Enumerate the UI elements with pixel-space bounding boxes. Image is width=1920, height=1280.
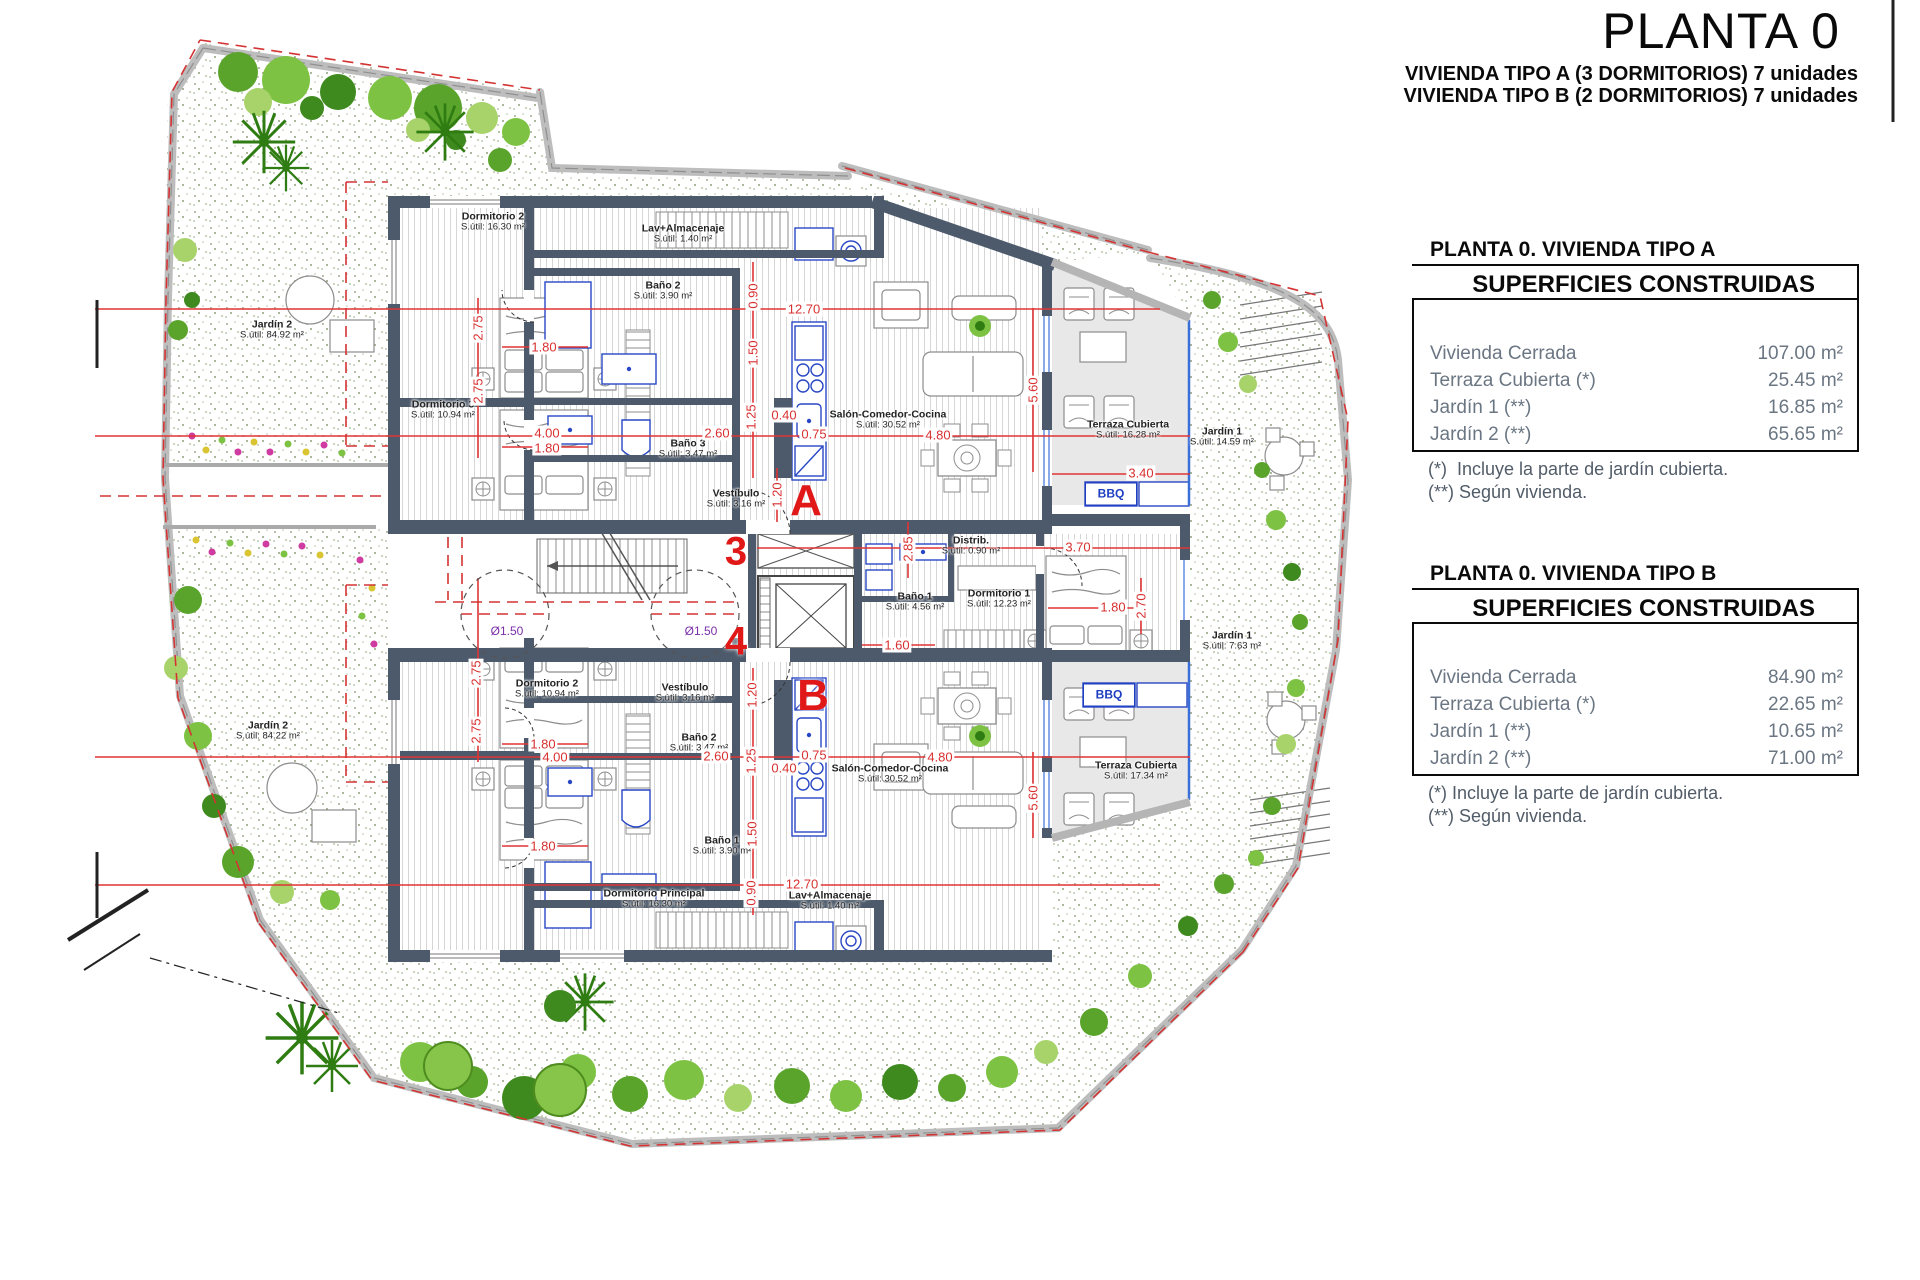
- room-label-vestibulo-a: VestíbuloS.útil: 3.16 m²: [707, 488, 766, 511]
- garden-label-jardin2-top: Jardín 2S.útil: 84.92 m²: [240, 319, 304, 342]
- row-label: Terraza Cubierta (*): [1430, 370, 1596, 394]
- room-label-dormitorio2-b: Dormitorio 2S.útil: 10.94 m²: [515, 678, 579, 701]
- note-line: (*) Incluye la parte de jardín cubierta.: [1428, 458, 1728, 481]
- floor-plan-sheet: { "title_block": { "title": "PLANTA 0", …: [0, 0, 1920, 1280]
- dimension-label: 2.75: [471, 313, 486, 342]
- dimension-label: 2.75: [469, 658, 484, 687]
- room-label-terraza-b: Terraza CubiertaS.útil: 17.34 m²: [1095, 760, 1177, 783]
- row-value: 10.65 m²: [1768, 721, 1843, 745]
- room-label-lav-a: Lav+AlmacenajeS.útil: 1.40 m²: [642, 223, 725, 246]
- surface-row: Jardín 2 (**)65.65 m²: [1430, 424, 1843, 448]
- dimension-label: 0.75: [799, 427, 828, 442]
- dimension-label: 1.25: [744, 402, 759, 431]
- row-label: Terraza Cubierta (*): [1430, 694, 1596, 718]
- subtitle-line-a: VIVIENDA TIPO A (3 DORMITORIOS) 7 unidad…: [1380, 63, 1858, 85]
- room-label-distrib: Distrib.S.útil: 0.90 m²: [942, 535, 1001, 558]
- page-title: PLANTA 0: [1400, 2, 1840, 60]
- room-label-bano1-b: Baño 1S.útil: 3.90 m²: [693, 835, 752, 858]
- dimension-label: 12.70: [786, 302, 823, 317]
- dimension-label: 1.50: [746, 338, 761, 367]
- garden-label-jardin2-bottom: Jardín 2S.útil: 84.22 m²: [236, 720, 300, 743]
- dimension-label: 2.70: [1134, 591, 1149, 620]
- dimension-label: 4.80: [923, 428, 952, 443]
- dimension-label: 1.80: [532, 441, 561, 456]
- portal-3-marker: 3: [725, 530, 747, 575]
- row-label: Jardín 2 (**): [1430, 748, 1531, 772]
- dimension-label: 1.80: [529, 340, 558, 355]
- table-notes: (*) Incluye la parte de jardín cubierta.…: [1428, 782, 1723, 828]
- surfaces-box: Vivienda Cerrada84.90 m² Terraza Cubiert…: [1412, 622, 1859, 776]
- room-label-vestibulo-b: VestíbuloS.útil: 3.16 m²: [656, 682, 715, 705]
- dimension-label: 0.75: [799, 748, 828, 763]
- room-label-terraza-a: Terraza CubiertaS.útil: 16.28 m²: [1087, 419, 1169, 442]
- surface-row: Vivienda Cerrada107.00 m²: [1430, 343, 1843, 367]
- dimension-label: 1.60: [882, 638, 911, 653]
- room-label-bano3-a: Baño 3S.útil: 3.47 m²: [659, 438, 718, 461]
- row-value: 107.00 m²: [1757, 343, 1843, 367]
- room-label-lav-b: Lav+AlmacenajeS.útil: 1.40 m²: [789, 890, 872, 913]
- surfaces-box: Vivienda Cerrada107.00 m² Terraza Cubier…: [1412, 298, 1859, 452]
- portal-4-marker: 4: [725, 620, 747, 665]
- room-label-dormitorio2-a: Dormitorio 2S.útil: 16.30 m²: [461, 211, 525, 234]
- surface-row: Terraza Cubierta (*)22.65 m²: [1430, 694, 1843, 718]
- surfaces-table-tipo-b: PLANTA 0. VIVIENDA TIPO B SUPERFICIES CO…: [1412, 562, 1859, 840]
- dimension-label: 0.40: [769, 408, 798, 423]
- surface-row: Jardín 2 (**)71.00 m²: [1430, 748, 1843, 772]
- dimension-label: 1.50: [745, 819, 760, 848]
- table-heading: PLANTA 0. VIVIENDA TIPO A: [1430, 238, 1715, 262]
- row-value: 65.65 m²: [1768, 424, 1843, 448]
- row-label: Jardín 1 (**): [1430, 721, 1531, 745]
- dimension-label: 1.80: [1098, 600, 1127, 615]
- unit-a-marker: A: [790, 476, 822, 526]
- note-line: (*) Incluye la parte de jardín cubierta.: [1428, 782, 1723, 805]
- dimension-label: 1.20: [770, 480, 785, 509]
- surface-row: Jardín 1 (**)10.65 m²: [1430, 721, 1843, 745]
- dimension-label: 4.80: [925, 750, 954, 765]
- room-label-bano1-a: Baño 1S.útil: 4.56 m²: [886, 591, 945, 614]
- heading-rule: [1412, 588, 1859, 590]
- dimension-label: 12.70: [784, 877, 821, 892]
- garden-label-jardin1-top: Jardín 1S.útil: 14.59 m²: [1190, 426, 1254, 449]
- table-heading: PLANTA 0. VIVIENDA TIPO B: [1430, 562, 1716, 586]
- dimension-label: 5.60: [1026, 375, 1041, 404]
- table-box-title: SUPERFICIES CONSTRUIDAS: [1472, 595, 1815, 623]
- dimension-label: 1.20: [745, 680, 760, 709]
- diameter-label: Ø1.50: [491, 624, 524, 638]
- dimension-label: 0.40: [769, 761, 798, 776]
- subtitle-line-b: VIVIENDA TIPO B (2 DORMITORIOS) 7 unidad…: [1380, 85, 1858, 107]
- surfaces-table-tipo-a: PLANTA 0. VIVIENDA TIPO A SUPERFICIES CO…: [1412, 238, 1859, 516]
- dimension-label: 1.25: [744, 746, 759, 775]
- dimension-label: 2.85: [901, 534, 916, 563]
- row-label: Vivienda Cerrada: [1430, 667, 1576, 691]
- row-value: 16.85 m²: [1768, 397, 1843, 421]
- table-box-title: SUPERFICIES CONSTRUIDAS: [1472, 271, 1815, 299]
- dimension-label: 4.00: [540, 750, 569, 765]
- dimension-label: 3.70: [1063, 540, 1092, 555]
- room-label-dormitorio3-a: Dormitorio 3S.útil: 10.94 m²: [411, 399, 475, 422]
- dimension-label: 4.00: [532, 426, 561, 441]
- note-line: (**) Según vivienda.: [1428, 481, 1728, 504]
- heading-rule: [1412, 264, 1859, 266]
- row-label: Vivienda Cerrada: [1430, 343, 1576, 367]
- row-value: 25.45 m²: [1768, 370, 1843, 394]
- room-label-dormitorio1-a: Dormitorio 1S.útil: 12.23 m²: [967, 588, 1031, 611]
- surface-row: Vivienda Cerrada84.90 m²: [1430, 667, 1843, 691]
- bbq-label-a: BBQ: [1085, 483, 1137, 506]
- diameter-label: Ø1.50: [685, 624, 718, 638]
- dimension-label: 2.75: [469, 716, 484, 745]
- unit-b-marker: B: [797, 671, 829, 721]
- surface-row: Terraza Cubierta (*)25.45 m²: [1430, 370, 1843, 394]
- dimension-label: 2.60: [702, 426, 731, 441]
- note-line: (**) Según vivienda.: [1428, 805, 1723, 828]
- table-notes: (*) Incluye la parte de jardín cubierta.…: [1428, 458, 1728, 504]
- dimension-label: 1.80: [528, 839, 557, 854]
- room-label-dormitorio-principal-b: Dormitorio PrincipalS.útil: 16.30 m²: [604, 888, 705, 911]
- dimension-label: 0.90: [746, 281, 761, 310]
- page-subtitle: VIVIENDA TIPO A (3 DORMITORIOS) 7 unidad…: [1380, 63, 1858, 107]
- room-label-salon-b: Salón-Comedor-CocinaS.útil: 30.52 m²: [832, 763, 949, 786]
- dimension-label: 2.75: [471, 376, 486, 405]
- row-value: 71.00 m²: [1768, 748, 1843, 772]
- dimension-label: 5.60: [1026, 783, 1041, 812]
- row-label: Jardín 2 (**): [1430, 424, 1531, 448]
- box-right-extension: [1857, 589, 1859, 622]
- dimension-label: 2.60: [701, 749, 730, 764]
- row-value: 22.65 m²: [1768, 694, 1843, 718]
- bbq-label-b: BBQ: [1083, 684, 1135, 707]
- dimension-label: 0.90: [744, 878, 759, 907]
- surface-row: Jardín 1 (**)16.85 m²: [1430, 397, 1843, 421]
- dimension-label: 3.40: [1126, 466, 1155, 481]
- garden-label-jardin1-bottom: Jardín 1S.útil: 7.63 m²: [1203, 630, 1262, 653]
- box-right-extension: [1857, 265, 1859, 298]
- row-value: 84.90 m²: [1768, 667, 1843, 691]
- room-label-bano2-a: Baño 2S.útil: 3.90 m²: [634, 280, 693, 303]
- row-label: Jardín 1 (**): [1430, 397, 1531, 421]
